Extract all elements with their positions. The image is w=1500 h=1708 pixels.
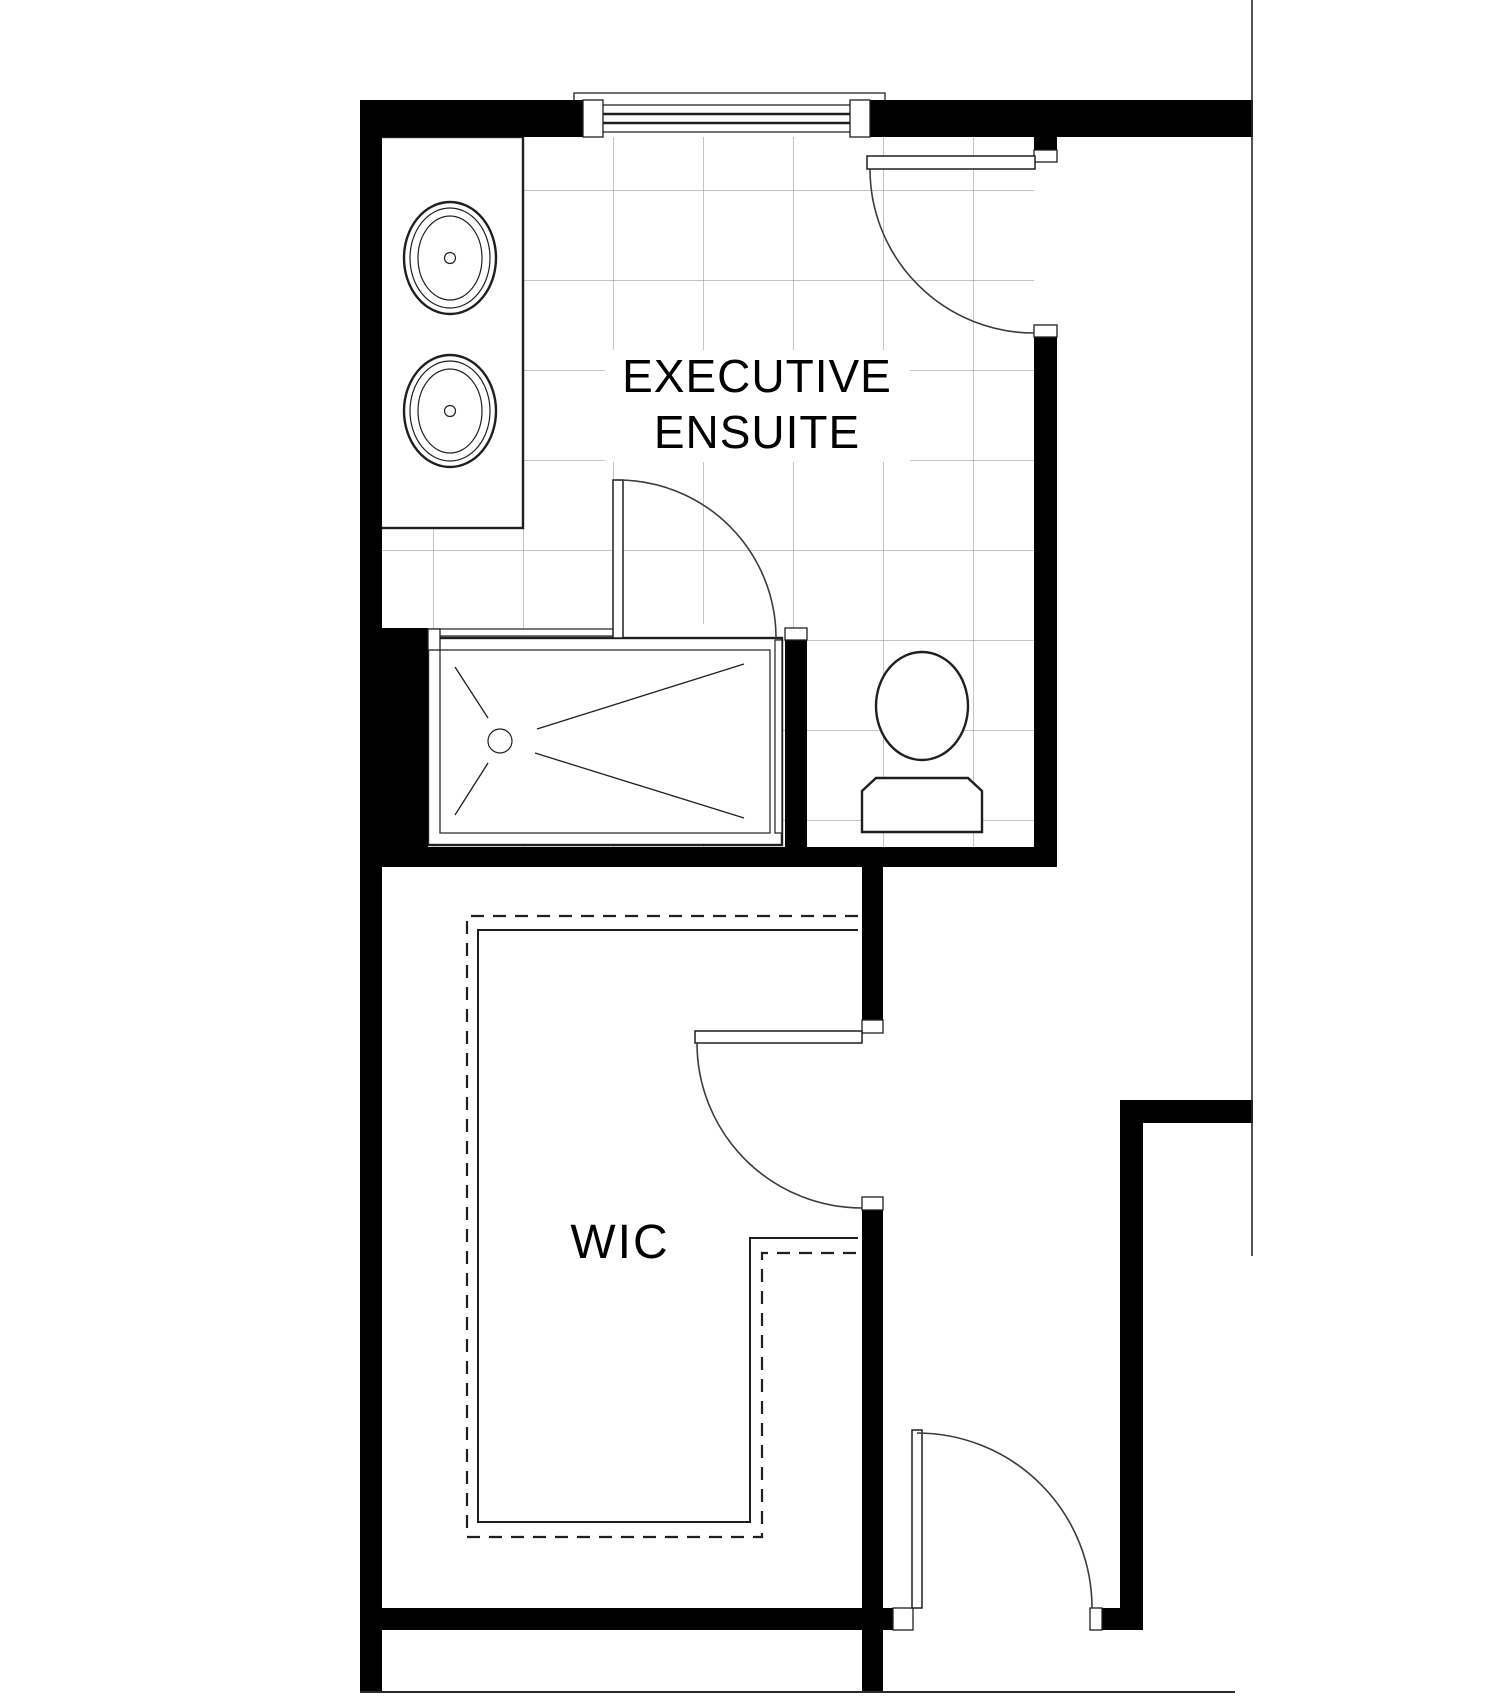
wall-hall-vertical xyxy=(1120,1100,1143,1630)
sink-icon xyxy=(404,202,496,314)
door-jamb xyxy=(862,1197,883,1210)
toilet-tank xyxy=(862,778,982,832)
wall-right-jamb-top xyxy=(1034,137,1057,150)
wall-wic-bottom xyxy=(360,1608,893,1630)
wall-ensuite-bottom xyxy=(360,847,1057,867)
ensuite-room-label-line2: ENSUITE xyxy=(654,406,860,458)
door-jamb xyxy=(1034,150,1057,162)
wall-shower-left xyxy=(360,628,428,867)
shower-glass-north xyxy=(428,629,618,636)
shower-drain-icon xyxy=(488,729,512,753)
vanity-counter xyxy=(378,137,523,528)
door-jamb xyxy=(1090,1608,1102,1630)
shower-glass-east xyxy=(775,640,782,833)
wall-left xyxy=(360,100,382,1692)
wic-room-label: WIC xyxy=(570,1216,669,1269)
toilet-bowl xyxy=(876,652,968,760)
window-jamb-left xyxy=(583,100,603,137)
ensuite-entry-door-leaf xyxy=(867,156,1035,169)
wall-wic-right-upper xyxy=(862,867,883,1020)
door-jamb xyxy=(1034,325,1057,337)
double-vanity-icon xyxy=(378,137,523,528)
floor-plan-drawing: EXECUTIVE ENSUITE WIC xyxy=(0,0,1500,1708)
floor-plan-canvas: EXECUTIVE ENSUITE WIC xyxy=(0,0,1500,1708)
door-jamb xyxy=(862,1020,883,1033)
shower-glass-bracket xyxy=(428,629,440,650)
wic-door-leaf xyxy=(695,1031,862,1043)
divider-jamb xyxy=(785,628,807,640)
wall-top-right xyxy=(870,100,1253,137)
door-threshold xyxy=(620,624,778,639)
walk-in-shower-icon xyxy=(428,638,782,845)
shower-door-leaf xyxy=(613,480,623,638)
window-jamb-right xyxy=(850,100,870,137)
hall-door-leaf xyxy=(912,1430,922,1608)
wall-top-left xyxy=(360,100,583,137)
wall-shower-toilet-divider xyxy=(785,628,807,867)
door-jamb xyxy=(893,1608,913,1630)
wall-ensuite-right xyxy=(1034,337,1057,867)
sink-icon xyxy=(404,355,496,467)
ensuite-room-label-line1: EXECUTIVE xyxy=(622,350,892,402)
